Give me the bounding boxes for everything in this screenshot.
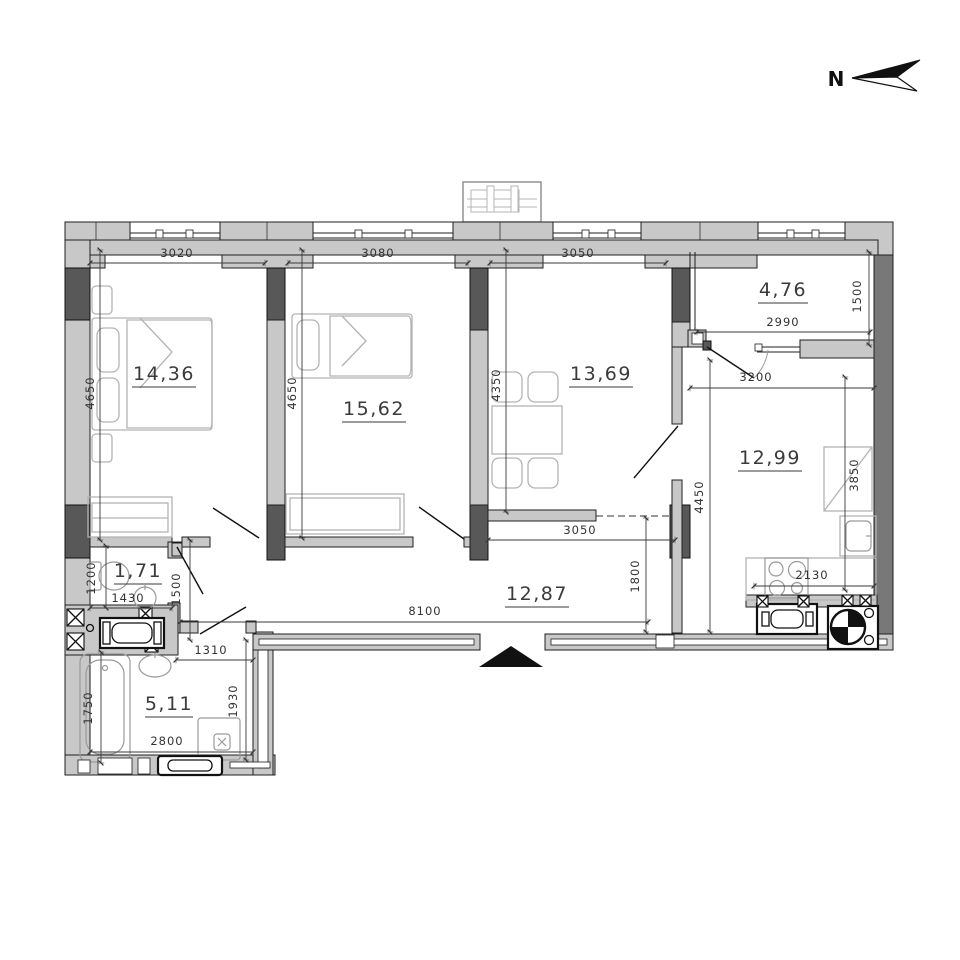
chair	[492, 458, 522, 488]
north-label: N	[828, 67, 845, 91]
dim-3050-top: 3050	[561, 246, 594, 260]
room-area-bedroom-1: 14,36	[133, 363, 195, 385]
dim-3200: 3200	[739, 370, 772, 384]
dim-4350: 4350	[489, 368, 503, 401]
dim-4650-bed1: 4650	[83, 376, 97, 409]
water-heater	[100, 618, 164, 648]
sofa	[88, 497, 172, 537]
column	[672, 268, 690, 322]
vent-box-icon	[67, 609, 84, 626]
north-arrow-icon	[852, 60, 920, 78]
wall-dining-hall	[488, 510, 596, 521]
dim-4450: 4450	[692, 480, 706, 513]
dim-2800: 2800	[150, 734, 183, 748]
wall-bed1-hall	[90, 537, 172, 547]
vent-box-icon	[67, 633, 84, 650]
radiator	[757, 604, 817, 634]
dim-1800: 1800	[628, 559, 642, 592]
column	[267, 268, 285, 320]
dim-2990: 2990	[766, 315, 799, 329]
wall-bed1-bed2	[267, 320, 285, 505]
door-bedroom-2	[419, 507, 464, 539]
room-area-dining: 13,69	[570, 363, 632, 385]
chair	[528, 458, 558, 488]
dim-2130: 2130	[795, 568, 828, 582]
wall-bed2-dining	[470, 330, 488, 505]
room-area-bathroom: 5,11	[145, 693, 193, 715]
room-area-balcony: 4,76	[759, 279, 807, 301]
dim-8100: 8100	[408, 604, 441, 618]
window-bedroom-1	[130, 230, 220, 238]
column	[65, 268, 90, 320]
door-bedroom-1	[213, 508, 259, 538]
dim-1500-wc: 1500	[169, 572, 183, 605]
column	[65, 505, 90, 558]
column	[267, 505, 285, 560]
column	[470, 268, 488, 330]
wall-hall-kitchen	[672, 480, 682, 633]
dim-4650-bed2: 4650	[285, 376, 299, 409]
dim-1200: 1200	[84, 561, 98, 594]
wall-balcony-kitchen	[800, 340, 874, 358]
window-dining	[553, 230, 641, 238]
floor-plan: N	[0, 0, 960, 960]
desk	[286, 494, 404, 534]
dim-3050-hall: 3050	[563, 523, 596, 537]
chair	[528, 372, 558, 402]
dim-3020: 3020	[160, 246, 193, 260]
door-dining	[634, 426, 678, 478]
dim-3850: 3850	[847, 458, 861, 491]
utility-shaft	[65, 605, 178, 655]
room-area-hallway: 12,87	[506, 583, 568, 605]
dim-1930: 1930	[226, 684, 240, 717]
room-area-wc: 1,71	[114, 560, 162, 582]
column	[470, 505, 488, 560]
bath-sink	[139, 653, 171, 677]
dim-1310: 1310	[194, 643, 227, 657]
wall-dining-kitchen-top	[672, 322, 690, 347]
window-kitchen-balcony-sill	[755, 344, 800, 352]
window-balcony-top	[758, 230, 845, 238]
dim-1750: 1750	[81, 691, 95, 724]
door-bathroom	[200, 607, 246, 634]
wall-niche-box	[656, 635, 674, 648]
wall-bed2-hall	[285, 537, 413, 547]
dim-1500-balcony: 1500	[850, 279, 864, 312]
dim-3080: 3080	[361, 246, 394, 260]
washing-machine	[198, 718, 240, 760]
room-area-kitchen: 12,99	[739, 447, 801, 469]
room-area-bedroom-2: 15,62	[343, 398, 405, 420]
window-bedroom-2	[313, 230, 453, 238]
single-bed	[292, 314, 412, 378]
entrance-arrow-icon	[479, 646, 543, 667]
north-arrow: N	[828, 60, 920, 91]
gas-meter-symbol	[828, 606, 878, 649]
dim-1430: 1430	[111, 591, 144, 605]
stairwell-detail	[463, 182, 541, 222]
